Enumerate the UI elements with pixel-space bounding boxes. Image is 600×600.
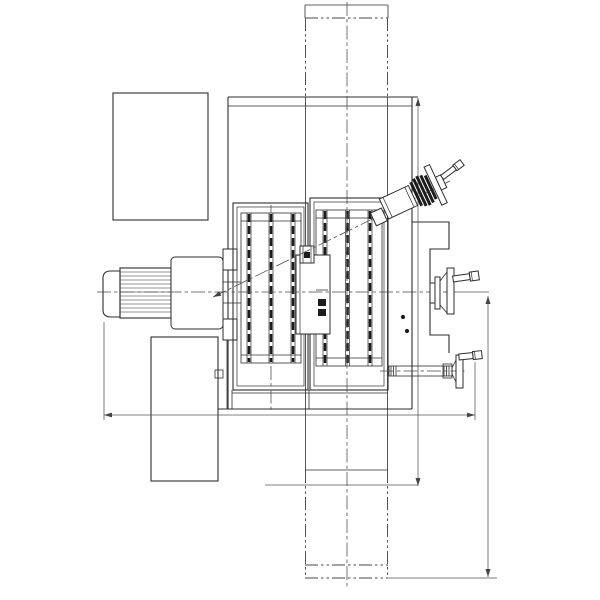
bolt-dot-1 — [401, 315, 405, 319]
vdim-body-arrow-top — [416, 98, 421, 106]
vdim-right-arrow-top — [486, 296, 491, 304]
lower-left-plate — [151, 337, 218, 481]
drawing-canvas — [0, 0, 600, 600]
central-block-bar-2 — [318, 309, 326, 316]
side-cone — [440, 272, 447, 313]
hdim-arrow-right — [467, 413, 475, 418]
motor-fin-block — [120, 268, 171, 318]
hdim-arrow-left — [104, 413, 112, 418]
center-bolt-core — [304, 252, 310, 258]
bottom-crank-knob — [473, 351, 483, 360]
side-crank-arm — [453, 274, 471, 282]
gearbox-flange-bottom — [223, 319, 237, 340]
vdim-right-arrow-bottom — [486, 569, 491, 577]
side-crank — [452, 271, 479, 284]
angled-crank-arm — [441, 166, 457, 180]
body-left-tab — [215, 370, 223, 378]
bolt-dot-2 — [405, 329, 409, 333]
tslot-left-bars — [249, 214, 293, 362]
machine-drawing — [0, 0, 600, 600]
gearbox-housing — [171, 257, 223, 329]
column — [305, 5, 497, 578]
column-top-cap — [305, 5, 388, 18]
table-assembly — [233, 198, 388, 413]
bottom-handwheel — [380, 351, 482, 388]
bottom-crank — [459, 351, 483, 361]
motor-end-cap — [103, 271, 120, 317]
central-block-bar-1 — [318, 299, 326, 306]
upper-left-plate — [113, 93, 208, 220]
angled-crank — [440, 160, 464, 181]
tslot-right-bars — [325, 211, 370, 365]
side-wheel-plate — [447, 268, 454, 314]
side-handwheel — [430, 268, 479, 314]
central-block — [296, 255, 330, 334]
side-disc-large — [435, 277, 440, 309]
spindle-shaft — [223, 282, 241, 303]
side-crank-knob — [469, 271, 479, 281]
side-disc-small — [430, 283, 435, 303]
gearbox-flange-top — [223, 249, 237, 270]
bottom-crank-arm — [459, 353, 474, 360]
